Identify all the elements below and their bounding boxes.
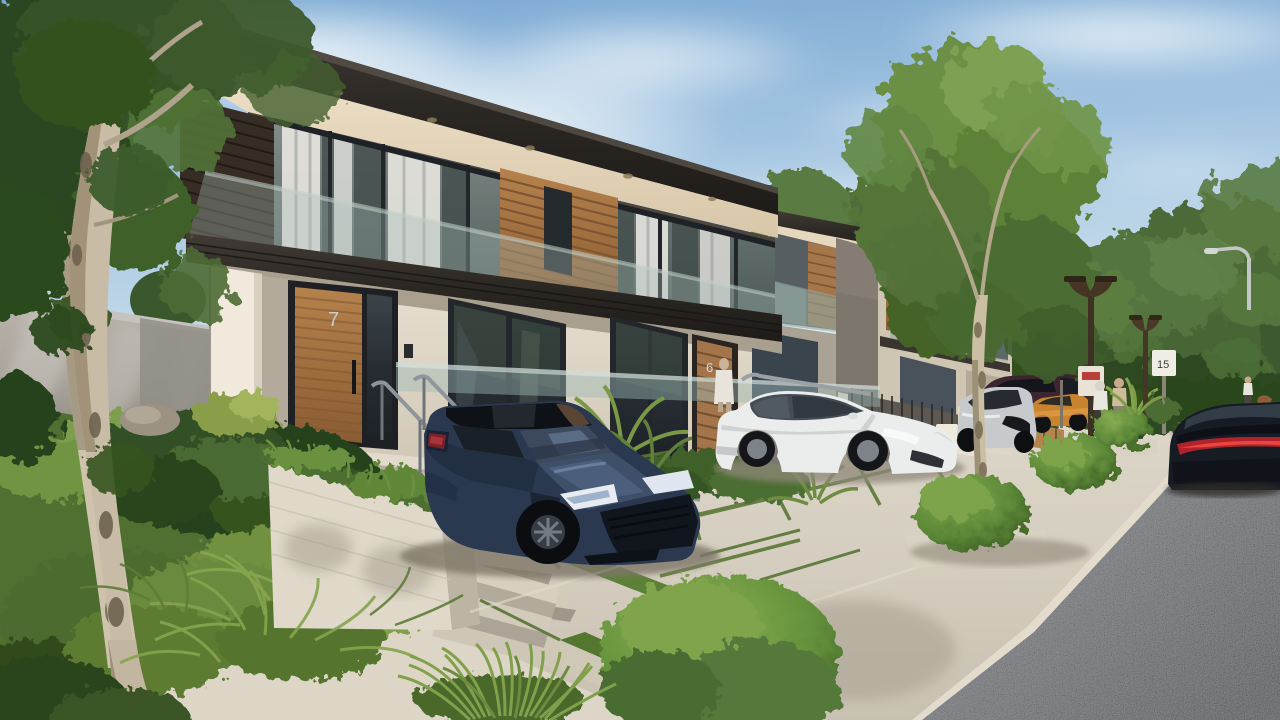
svg-text:6: 6: [706, 360, 713, 375]
svg-text:15: 15: [1157, 359, 1169, 371]
svg-text:7: 7: [328, 309, 339, 331]
